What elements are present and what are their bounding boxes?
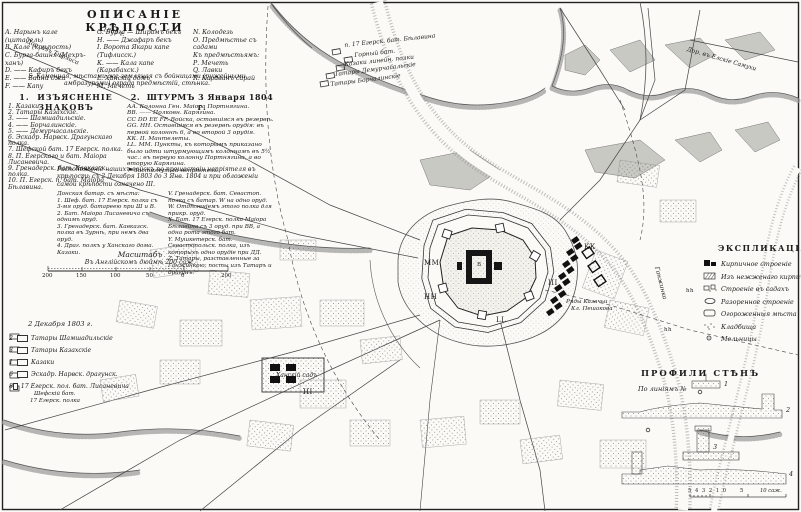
unit-number: 6: [9, 371, 17, 378]
december-heading: 2 Декабря 1803 г.: [28, 320, 92, 328]
point-marker: hh: [686, 288, 694, 294]
list-item: 2. Бат. Маіора Лисаневича съ однимъ оруд…: [57, 211, 163, 224]
position-marker: III: [303, 388, 313, 396]
explication-list: Кирпичное строеніе Изъ нежженаго кирпича…: [703, 258, 799, 346]
legend-label: Огороженныя мѣста: [721, 310, 797, 318]
scale-tick: 0: [181, 273, 185, 279]
list-item: GG. НН. Оставшіяся въ резервѣ орудія: въ…: [127, 123, 277, 136]
legend-label: Кирпичное строеніе: [721, 260, 792, 268]
legend-entry: Р. Мечеть: [193, 60, 271, 68]
assault-number: 2.: [131, 92, 140, 102]
profiles-scale-label: 10 саж.: [760, 488, 782, 494]
list-item: W. Отдѣленіемъ этого полка для прикр. ор…: [168, 204, 274, 217]
point-marker: НН: [424, 293, 437, 301]
point-marker: hh: [664, 327, 672, 333]
scale-subtitle: Въ Англійскомъ дюймѣ 200 саж.: [68, 259, 212, 266]
mill-symbol: [703, 333, 721, 345]
point-marker: LL: [496, 316, 506, 324]
unit-label: Татары Казахскіе: [31, 347, 91, 354]
brick-building-symbol: [703, 258, 721, 270]
december-list: 2 Татары Шамшадильскіе 3 Татары Казахскі…: [9, 332, 129, 392]
suburb-label: Кл. Пешакова: [571, 306, 613, 312]
profile-number: 4: [789, 470, 793, 478]
scale-tick: 100: [110, 273, 121, 279]
legend-entry: А. Нарынъ кале (цитадель): [5, 29, 97, 44]
garden-building-symbol: [703, 283, 721, 295]
list-item: 6 Эскадр. Нарвск. драгунск.: [9, 368, 129, 380]
list-item: Разоренное строеніе: [703, 296, 799, 309]
unit-label: Казаки: [31, 359, 54, 366]
legend-label: Изъ нежженаго кирпича: [721, 273, 801, 281]
khan-garden-label: Ханскій садъ: [276, 372, 317, 379]
list-item: Мельницы: [703, 333, 799, 346]
profiles-heading: ПРОФИЛИ СТѢНЪ: [641, 369, 760, 379]
legend-label: Мельницы: [721, 335, 757, 343]
list-item: Строеніе въ садахъ: [703, 283, 799, 296]
point-marker: ММ: [424, 259, 439, 267]
unit-label: Эскадр. Нарвск. драгунск.: [31, 371, 118, 378]
list-item: 1. Шеф. бат. 17 Егерск. полка съ 3-мя ор…: [57, 198, 163, 211]
legend-label: Кладбища: [721, 323, 756, 331]
legend-entry: О. Предмѣстье съ садами: [193, 37, 271, 52]
profiles-scale: [690, 494, 786, 497]
list-item: 4. Драг. полкъ у Ханскаго дома.: [57, 243, 163, 250]
suburb-label: Ряды Казачьи: [566, 299, 608, 305]
assault-list: АА. Колонна Ген. Маіора Портнягина. ВВ. …: [127, 104, 277, 174]
explication-heading: ЭКСПЛИКАЦІЯ: [718, 243, 801, 253]
profiles-scale-ticks: 5 4 3 2 1 0: [688, 488, 727, 494]
profile-number: 3: [713, 443, 717, 451]
description-note: S. Каменная, мѣстами же земляная съ бойн…: [14, 73, 260, 87]
scale-tick: 150: [76, 273, 87, 279]
profile-number: 1: [724, 380, 728, 388]
legend-entry: I. Ворота Якари капе (Тифлисск.): [97, 44, 193, 59]
adobe-building-symbol: [703, 271, 721, 283]
list-item: V. Гренадерск. бат. Севастоп. полка съ б…: [168, 191, 274, 204]
list-item: 2 Татары Шамшадильскіе: [9, 332, 129, 344]
list-item: X. Бат. 17 Егерск. полка Маіора Бѣлавина…: [168, 217, 274, 237]
unit-symbol: [13, 383, 18, 390]
battalion-label: 17 Егерск. полка: [30, 398, 80, 404]
unit-number: 1: [9, 359, 17, 366]
unit-symbol: [17, 359, 28, 366]
battalion-label: Шефскій бат.: [34, 391, 76, 397]
list-item: 3 Татары Казахскіе: [9, 344, 129, 356]
list-item: Кладбища: [703, 321, 799, 334]
profiles-subheading: По линіямъ №: [638, 385, 687, 393]
scale-tick: 200: [221, 273, 232, 279]
ruined-building-symbol: [703, 296, 721, 308]
list-item: LL. ММ. Пункты, къ которымъ приказано бы…: [127, 142, 277, 168]
positions-left: Донская батар. съ мѣста: 1. Шеф. бат. 17…: [57, 191, 163, 256]
unit-symbol: [17, 347, 28, 354]
scale-tick: 200: [42, 273, 53, 279]
list-item: Огороженныя мѣста: [703, 308, 799, 321]
citadel-marker: В: [477, 262, 482, 268]
unit-label: 17 Егерск. пол. бат. Лисаневича: [21, 383, 129, 390]
list-item: Кирпичное строеніе: [703, 258, 799, 271]
unit-symbol: [17, 335, 28, 342]
list-item: 3. Гренадерск. бат. Кавказск. полка въ З…: [57, 224, 163, 244]
unit-symbol: [17, 371, 28, 378]
scale-tick: 50: [146, 273, 153, 279]
cemetery-symbol: [703, 321, 721, 333]
scale-title: Масштабъ: [88, 250, 192, 259]
legend-entry: N. Колодезь: [193, 29, 271, 37]
legend-entry: Къ предмѣстьямъ:: [193, 52, 271, 60]
point-marker: КК: [584, 243, 596, 251]
unit-number: 3: [9, 347, 17, 354]
profile-number: 2: [786, 406, 790, 414]
position-marker: III: [548, 279, 558, 287]
fenced-place-symbol: [703, 308, 721, 320]
legend-entry: Н. —— Джафаръ бекъ: [97, 37, 193, 45]
list-item: Изъ нежженаго кирпича: [703, 271, 799, 284]
unit-label: Татары Шамшадильскіе: [31, 335, 113, 342]
unit-number: 2: [9, 335, 17, 342]
map-sheet: ОПИСАНІЕ КРѢПОСТИ А. Нарынъ кале (цитаде…: [0, 0, 801, 512]
list-item: 1 Казаки: [9, 356, 129, 368]
profiles-scale-mid: 5: [740, 488, 743, 494]
legend-label: Разоренное строеніе: [721, 298, 794, 306]
signs-number: 1.: [19, 92, 29, 102]
troops-note: Расположеніе нашихъ войскъ по прошествіи…: [57, 166, 273, 188]
legend-label: Строеніе въ садахъ: [721, 285, 789, 293]
